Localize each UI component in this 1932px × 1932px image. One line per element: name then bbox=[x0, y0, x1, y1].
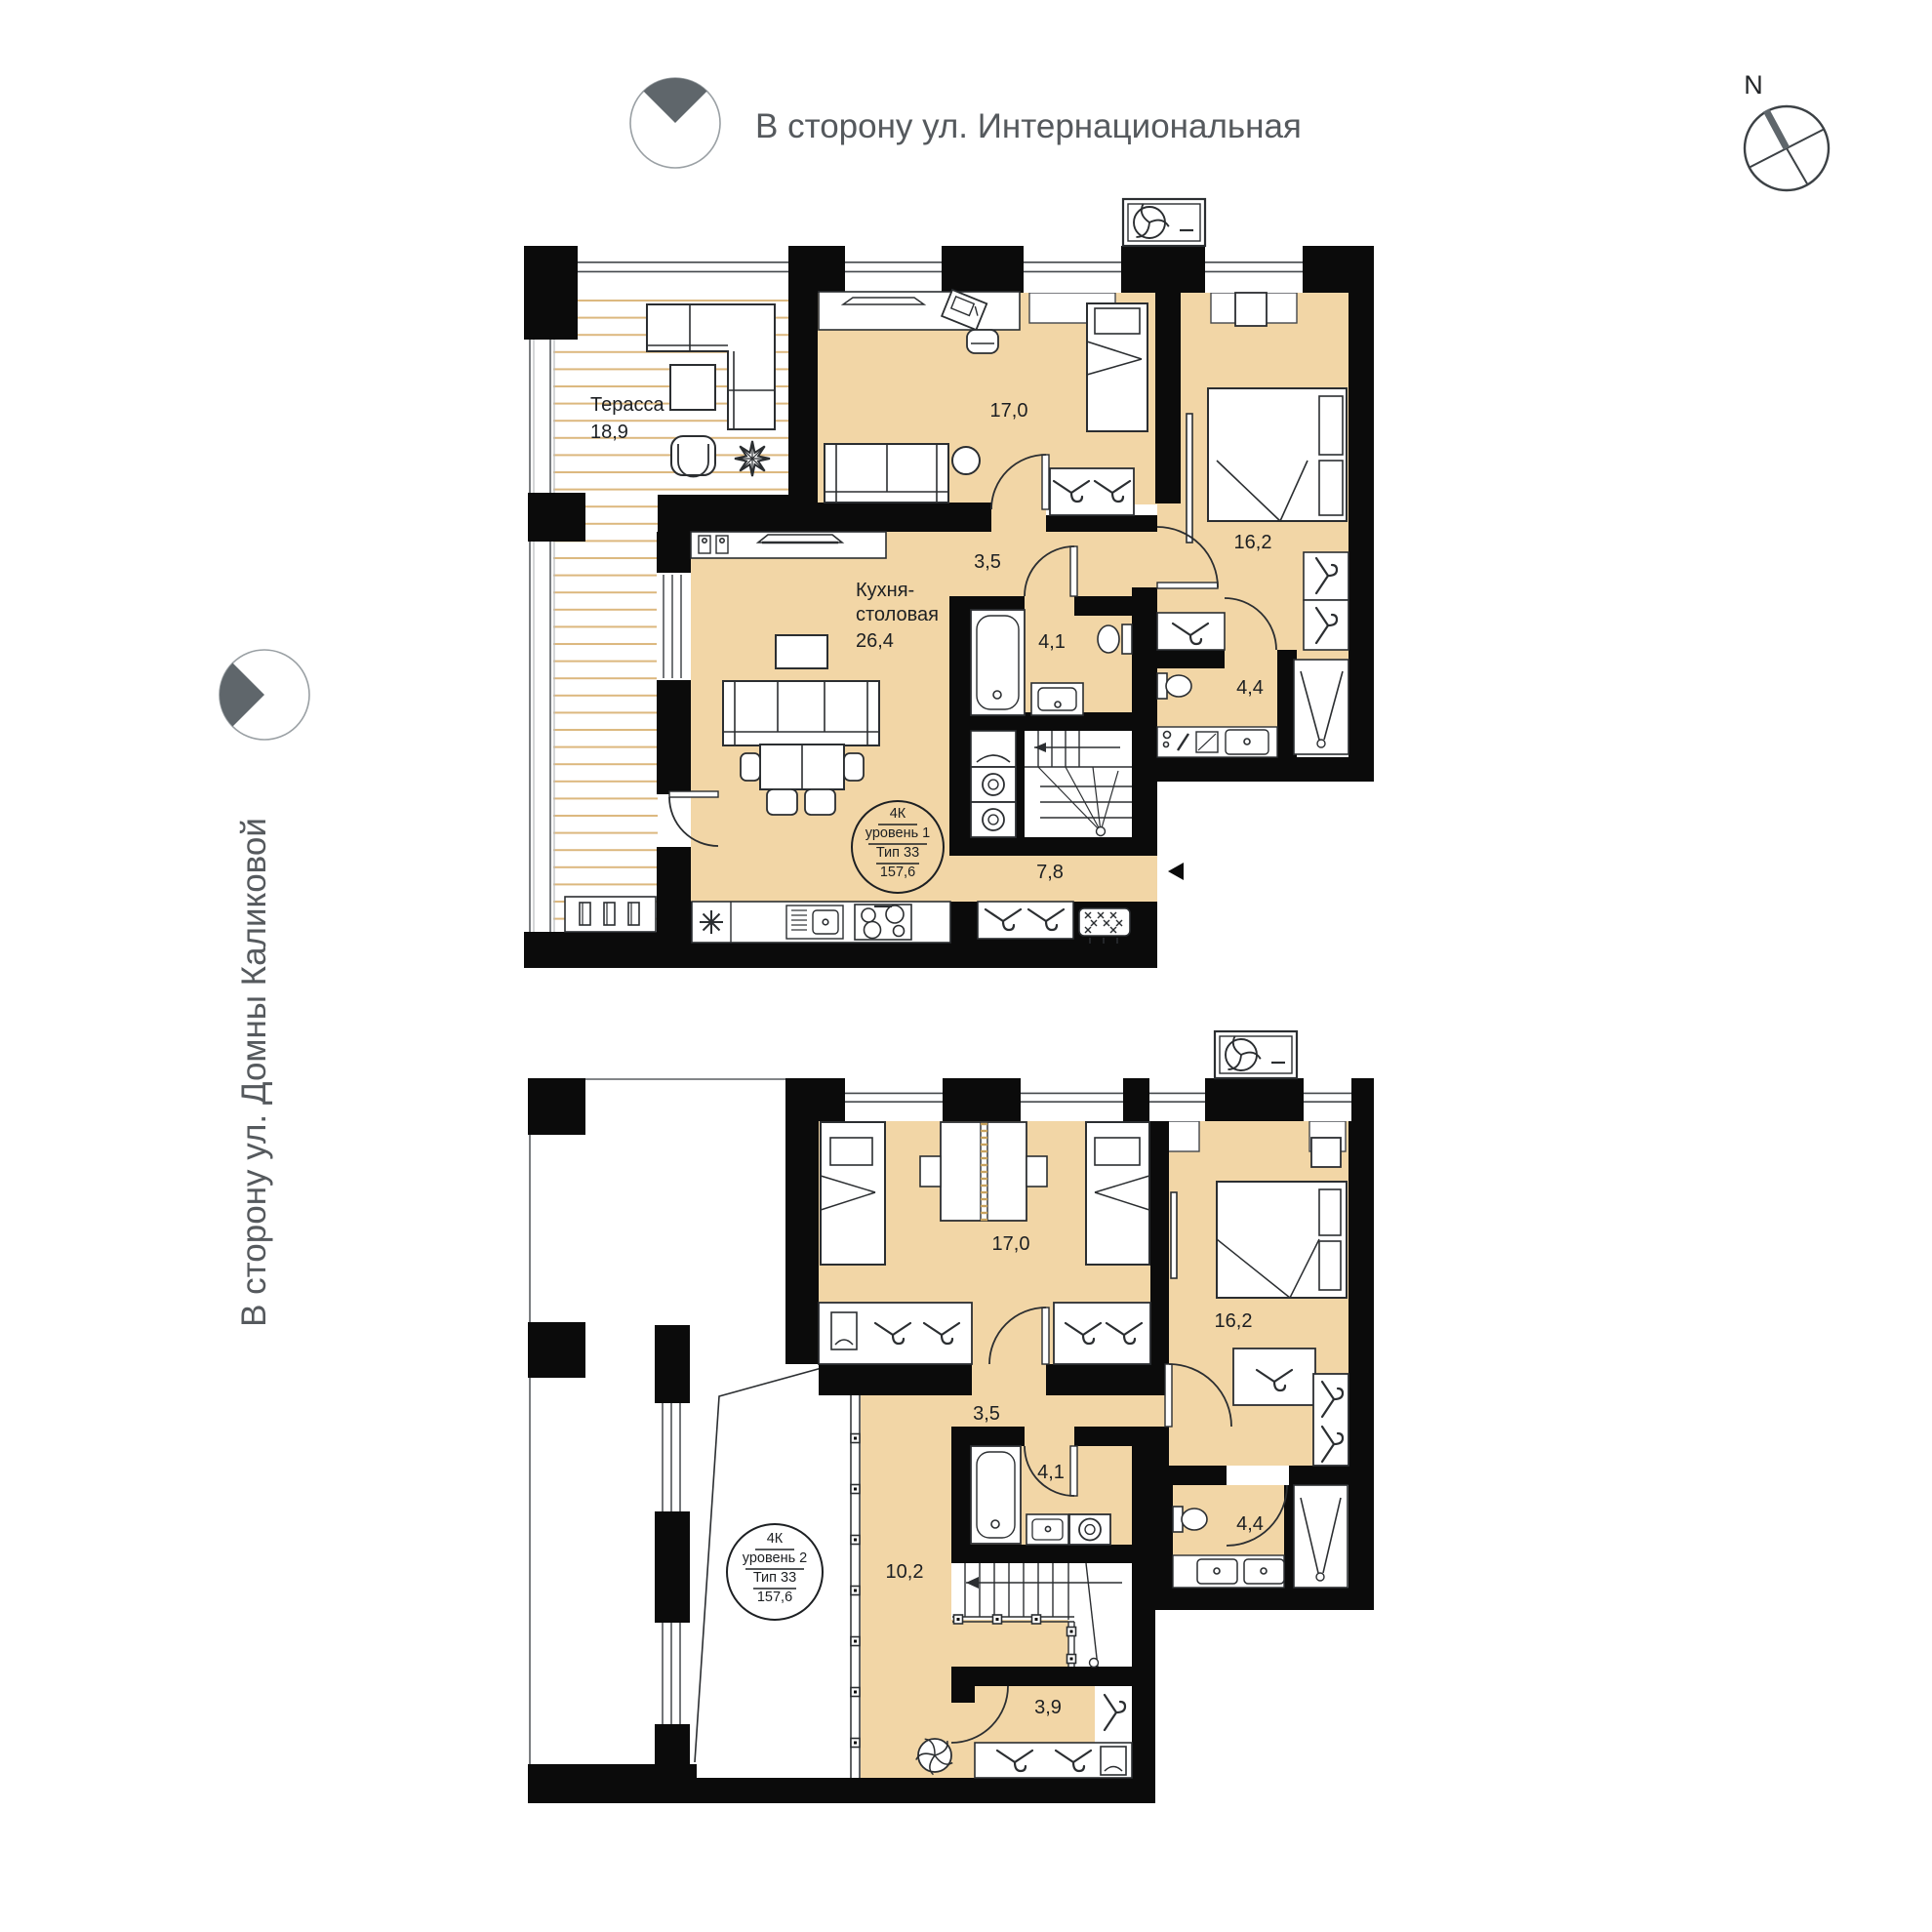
svg-text:4,1: 4,1 bbox=[1037, 1462, 1065, 1483]
svg-text:3,5: 3,5 bbox=[973, 1403, 1000, 1425]
svg-text:Кухня-: Кухня- bbox=[856, 580, 914, 601]
svg-text:4,4: 4,4 bbox=[1236, 677, 1264, 699]
svg-text:3,5: 3,5 bbox=[974, 551, 1001, 573]
svg-text:18,9: 18,9 bbox=[590, 422, 628, 443]
svg-text:уровень 1: уровень 1 bbox=[865, 825, 930, 841]
svg-text:157,6: 157,6 bbox=[880, 865, 915, 880]
svg-text:4,1: 4,1 bbox=[1038, 631, 1066, 653]
svg-text:В сторону ул. Интернациональна: В сторону ул. Интернациональная bbox=[755, 107, 1302, 145]
svg-text:N: N bbox=[1744, 70, 1763, 100]
svg-text:4,4: 4,4 bbox=[1236, 1513, 1264, 1535]
svg-text:10,2: 10,2 bbox=[886, 1561, 924, 1583]
svg-text:уровень 2: уровень 2 bbox=[743, 1550, 807, 1566]
svg-text:17,0: 17,0 bbox=[992, 1233, 1030, 1255]
svg-text:157,6: 157,6 bbox=[757, 1590, 792, 1605]
svg-text:3,9: 3,9 bbox=[1034, 1697, 1062, 1718]
svg-text:26,4: 26,4 bbox=[856, 630, 894, 652]
svg-text:16,2: 16,2 bbox=[1215, 1310, 1253, 1332]
svg-text:4К: 4К bbox=[767, 1531, 784, 1547]
svg-text:17,0: 17,0 bbox=[990, 400, 1028, 422]
svg-text:столовая: столовая bbox=[856, 604, 939, 625]
svg-text:4К: 4К bbox=[890, 806, 906, 822]
svg-text:Тип 33: Тип 33 bbox=[753, 1570, 796, 1586]
svg-text:16,2: 16,2 bbox=[1234, 532, 1272, 553]
svg-text:Тип 33: Тип 33 bbox=[876, 845, 919, 861]
svg-text:7,8: 7,8 bbox=[1036, 862, 1064, 883]
svg-text:Терасса: Терасса bbox=[590, 394, 664, 416]
svg-text:В сторону ул. Домны Каликовой: В сторону ул. Домны Каликовой bbox=[235, 818, 273, 1327]
